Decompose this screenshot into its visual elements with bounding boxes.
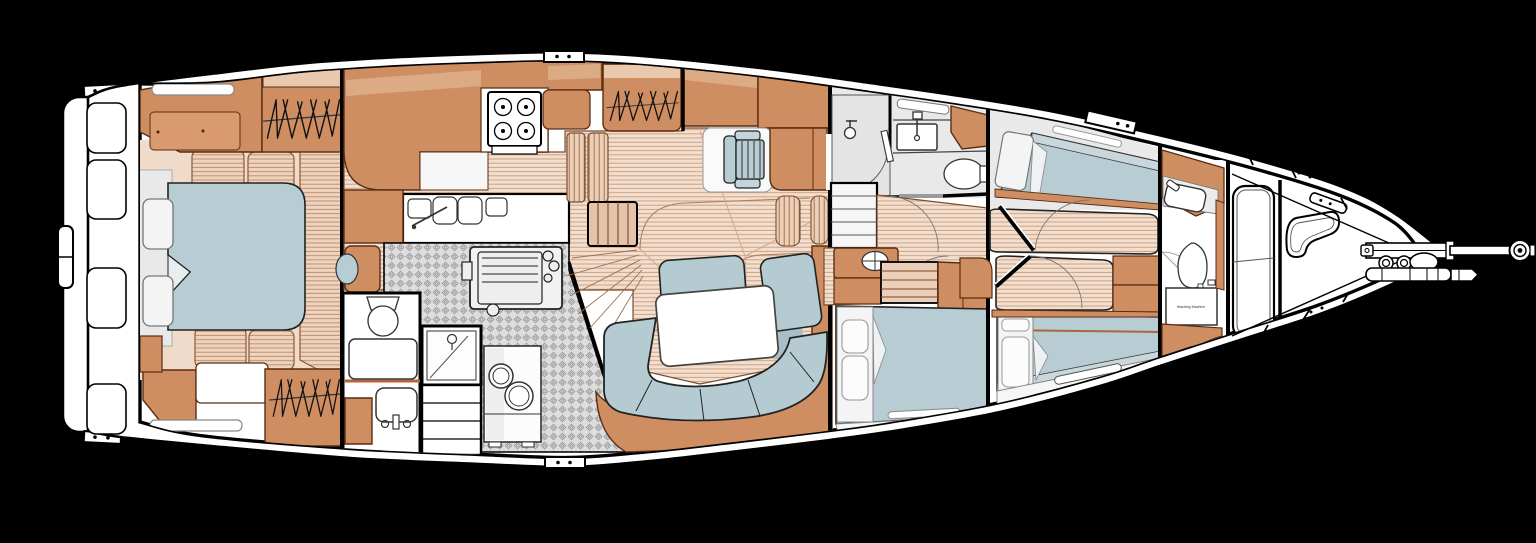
svg-text:Washing Machine: Washing Machine — [1177, 305, 1205, 309]
